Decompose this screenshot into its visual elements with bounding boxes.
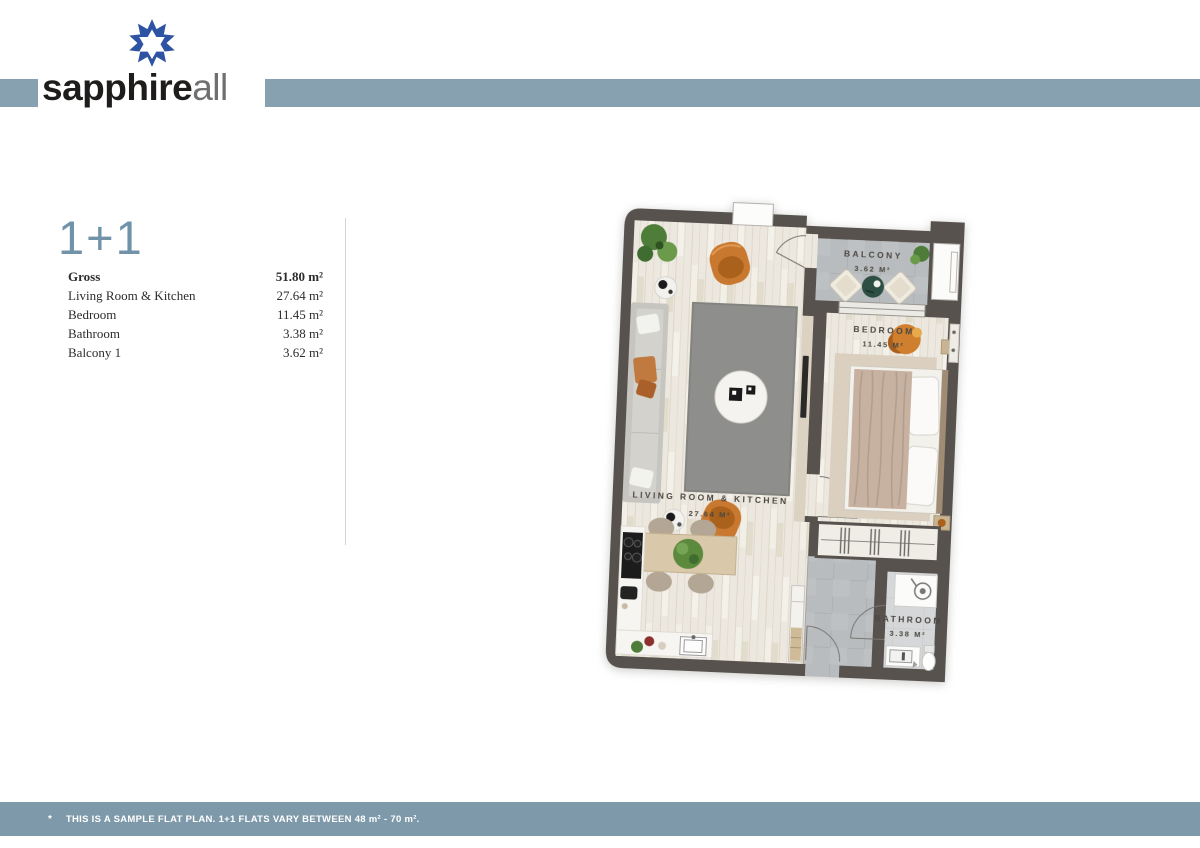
bathroom-area: 3.38 M² [889, 629, 926, 640]
bed [844, 366, 948, 514]
side-table [654, 276, 677, 299]
footnote-text: THIS IS A SAMPLE FLAT PLAN. 1+1 FLATS VA… [66, 814, 420, 825]
shower [894, 574, 937, 608]
area-label: Balcony 1 [68, 345, 121, 364]
entry-cabinet [789, 585, 805, 661]
area-row-bedroom: Bedroom 11.45 m² [68, 307, 323, 326]
area-value: 27.64 m² [276, 288, 323, 307]
area-label: Bedroom [68, 307, 116, 326]
area-table: Gross 51.80 m² Living Room & Kitchen 27.… [68, 269, 323, 364]
area-value: 3.62 m² [283, 345, 323, 364]
area-label: Gross [68, 269, 100, 288]
unit-type-heading: 1+1 [58, 210, 144, 265]
area-value: 51.80 m² [276, 269, 323, 288]
balcony-area: 3.62 M² [854, 264, 891, 275]
wall-shelf [949, 324, 960, 362]
header-band-left-segment [0, 79, 38, 107]
star-burst-logo-icon [126, 15, 178, 71]
area-row-living: Living Room & Kitchen 27.64 m² [68, 288, 323, 307]
area-label: Bathroom [68, 326, 120, 345]
brand-wordmark: sapphireall [42, 68, 228, 108]
flat-plan-page: sapphireall 1+1 Gross 51.80 m² Living Ro… [0, 0, 1200, 848]
area-value: 11.45 m² [277, 307, 323, 326]
brand-name-bold: sapphire [42, 67, 192, 108]
vertical-divider [345, 218, 346, 545]
shaft [733, 203, 774, 227]
area-label: Living Room & Kitchen [68, 288, 195, 307]
footnote-asterisk: * [48, 814, 52, 825]
area-row-bathroom: Bathroom 3.38 m² [68, 326, 323, 345]
brand-name-light: all [192, 67, 228, 108]
floor-plan: BALCONY 3.62 M² [591, 195, 980, 693]
balcony-niche [931, 243, 959, 300]
area-row-balcony: Balcony 1 3.62 m² [68, 345, 323, 364]
wardrobe [816, 522, 939, 561]
area-value: 3.38 m² [283, 326, 323, 345]
footer-band: * THIS IS A SAMPLE FLAT PLAN. 1+1 FLATS … [0, 802, 1200, 836]
area-row-gross: Gross 51.80 m² [68, 269, 323, 288]
bedroom-area: 11.45 M² [862, 339, 904, 350]
living-area: 27.64 M² [688, 509, 731, 520]
header-band-right-segment [265, 79, 1200, 107]
